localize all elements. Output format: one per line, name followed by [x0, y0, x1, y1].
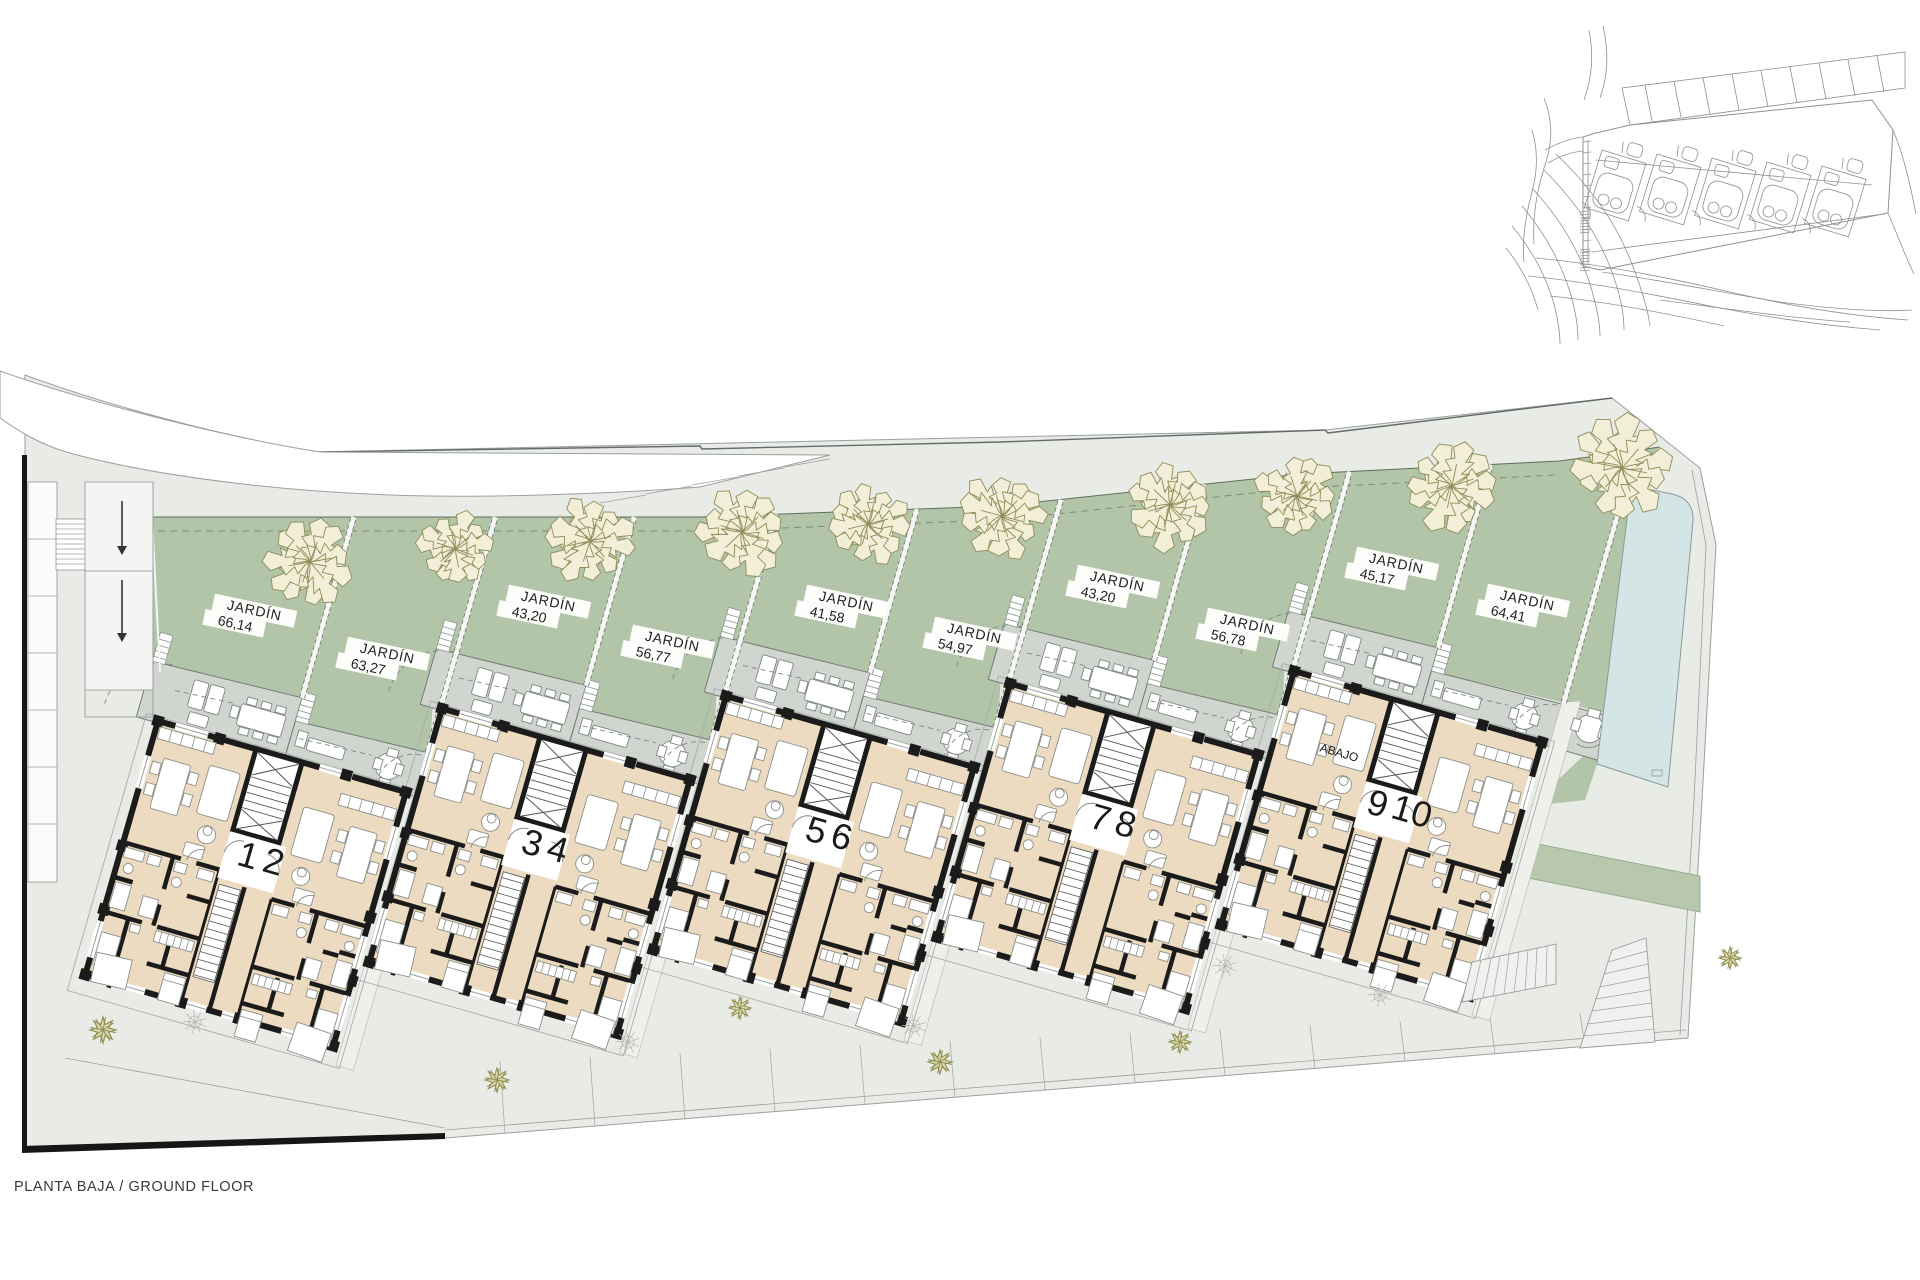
- svg-text:PLANTA BAJA / GROUND FLOOR: PLANTA BAJA / GROUND FLOOR: [14, 1179, 254, 1195]
